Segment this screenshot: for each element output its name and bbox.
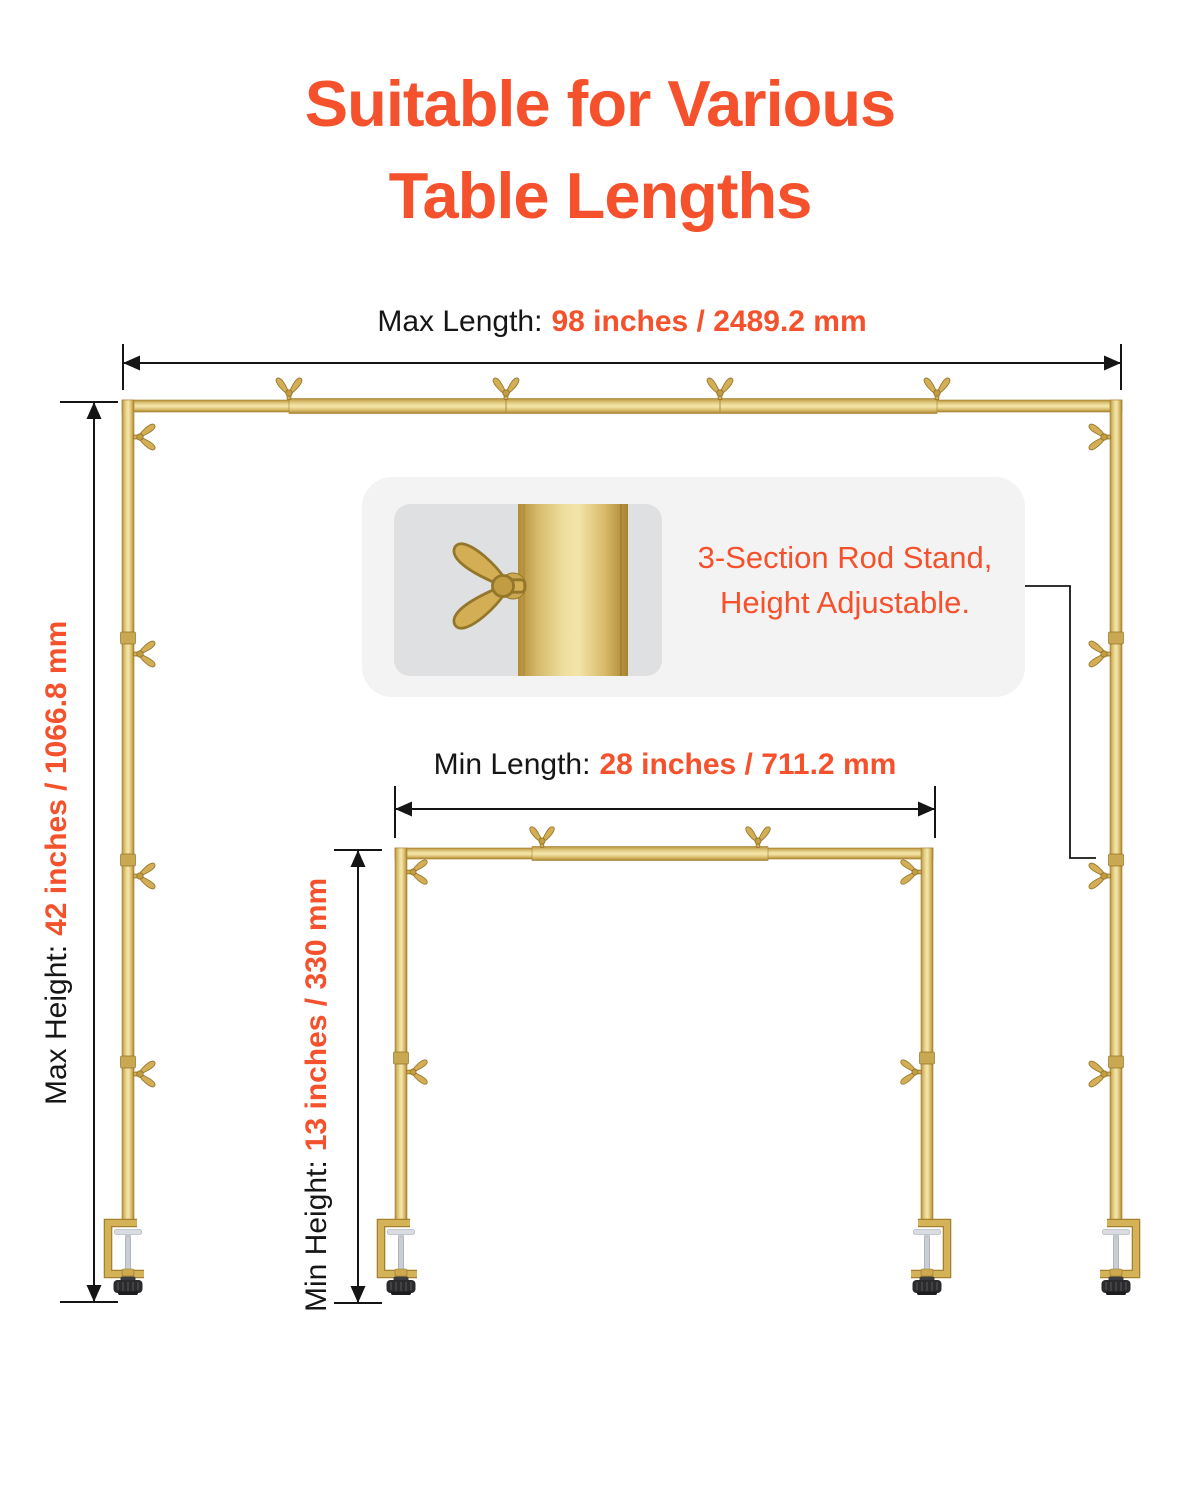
wing-nut-icon xyxy=(407,827,922,1084)
c-clamp-icon xyxy=(381,1223,947,1295)
min-length-caption: Min Length: xyxy=(434,748,591,781)
rod-stand-infographic: Suitable for VariousTable Lengths Max Le… xyxy=(0,0,1200,1500)
min-height-label: Min Height:13 inches / 330 mm xyxy=(300,878,334,1312)
page-title: Suitable for VariousTable Lengths xyxy=(0,58,1200,242)
callout-text: 3-Section Rod Stand,Height Adjustable. xyxy=(642,535,1048,625)
small-frame xyxy=(381,827,947,1295)
min-length-label: Min Length:28 inches / 711.2 mm xyxy=(395,748,935,782)
callout-line2: Height Adjustable. xyxy=(720,585,970,620)
min-height-value: 13 inches / 330 mm xyxy=(300,878,333,1152)
page-title-line2: Table Lengths xyxy=(389,159,812,232)
max-height-caption: Max Height: xyxy=(40,945,73,1105)
page-title-line1: Suitable for Various xyxy=(305,67,895,140)
max-length-value: 98 inches / 2489.2 mm xyxy=(551,305,866,338)
max-height-value: 42 inches / 1066.8 mm xyxy=(40,621,73,936)
max-length-caption: Max Length: xyxy=(377,305,542,338)
callout-connector-line xyxy=(1025,586,1096,858)
min-length-value: 28 inches / 711.2 mm xyxy=(599,748,896,781)
c-clamp-icon xyxy=(108,1223,1136,1295)
max-length-label: Max Length:98 inches / 2489.2 mm xyxy=(122,305,1122,339)
callout-line1: 3-Section Rod Stand, xyxy=(698,540,993,575)
max-height-label: Max Height:42 inches / 1066.8 mm xyxy=(40,621,74,1105)
min-height-caption: Min Height: xyxy=(300,1160,333,1312)
detail-callout-card: 3-Section Rod Stand,Height Adjustable. xyxy=(362,477,1025,697)
